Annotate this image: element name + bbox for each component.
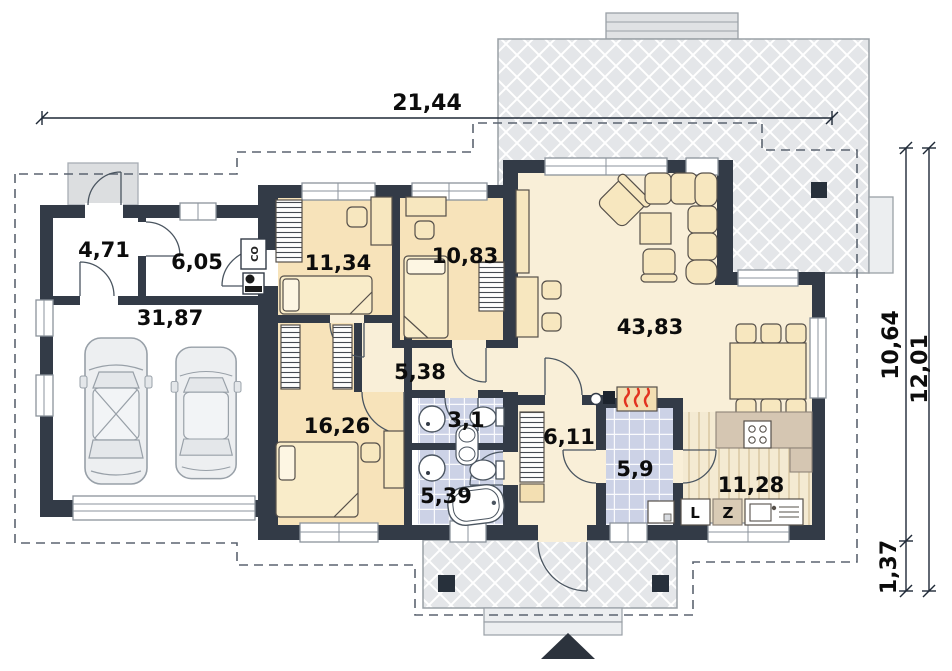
room-label-bathroom-small: 3,1: [447, 408, 484, 432]
dimension-height-inner: 10,64: [879, 310, 904, 380]
toilet: [470, 460, 504, 480]
bed-2: [404, 256, 448, 338]
chair: [542, 281, 561, 299]
desk-chair: [361, 443, 380, 462]
porch-column-right: [652, 575, 669, 592]
floor-plan-page: 21,44 10,64 12,01 1,37 4,71 6,05 31,87 1…: [0, 0, 952, 671]
chair: [542, 313, 561, 331]
hob-icon: [744, 421, 771, 448]
washing-machine: [648, 501, 674, 523]
wardrobe: [281, 325, 300, 389]
entrance-arrow: [541, 633, 595, 659]
room-label-bedroom-3: 16,26: [304, 414, 370, 438]
terrace-step: [869, 197, 893, 273]
dining-chair: [761, 324, 781, 343]
dimension-height-total: 12,01: [908, 334, 933, 404]
wardrobe: [333, 325, 352, 389]
dining-set: [730, 324, 806, 418]
bed-1: [280, 276, 372, 314]
room-label-kitchen: 11,28: [718, 473, 784, 497]
terrace-column: [811, 182, 827, 198]
room-label-hall: 6,11: [543, 425, 595, 449]
sideboard: [516, 190, 529, 273]
dimension-height-porch: 1,37: [877, 540, 902, 594]
room-label-vestibule: 4,71: [78, 238, 130, 262]
room-floor-corridor-upper: [362, 323, 392, 348]
porch-column-left: [438, 575, 455, 592]
fireplace-flue: [591, 394, 602, 405]
washbasin: [419, 406, 445, 432]
desk: [406, 197, 446, 216]
entry-canopy: [68, 163, 138, 205]
porch-step-2: [484, 622, 622, 635]
kitchen-counter-return: [790, 448, 812, 472]
room-label-bedroom-1: 11,34: [305, 251, 371, 275]
wardrobe: [276, 200, 302, 262]
desk-chair: [415, 221, 434, 239]
room-label-garage: 31,87: [137, 306, 203, 330]
room-label-tech: 6,05: [171, 250, 223, 274]
dishwasher-label: Z: [723, 504, 734, 522]
dining-chair: [736, 324, 756, 343]
kitchen-sink: [745, 499, 803, 525]
room-label-bathroom: 5,39: [420, 484, 472, 508]
console-table: [516, 277, 538, 337]
fridge-label: L: [690, 504, 700, 522]
fireplace-box: [603, 391, 615, 404]
washbasin: [419, 455, 445, 481]
room-label-corridor: 5,38: [394, 360, 446, 384]
hall-wardrobe: [520, 412, 544, 482]
desk: [384, 431, 404, 488]
car-2: [171, 347, 241, 478]
coffee-table: [640, 213, 671, 244]
desk: [371, 197, 392, 245]
bed-3: [276, 442, 358, 517]
room-label-bedroom-2: 10,83: [432, 244, 498, 268]
floor-plan-drawing: 21,44 10,64 12,01 1,37 4,71 6,05 31,87 1…: [0, 0, 952, 671]
desk-chair: [347, 207, 367, 227]
wardrobe: [479, 262, 504, 311]
car-1: [80, 338, 152, 484]
hall-cabinet: [520, 484, 544, 502]
chimney: [606, 13, 738, 39]
dining-chair: [786, 324, 806, 343]
dimension-width-total: 21,44: [392, 91, 462, 116]
dining-table: [730, 343, 806, 399]
small-armchair: [641, 249, 677, 282]
boiler-label: CO: [250, 246, 261, 262]
room-label-utility: 5,9: [616, 457, 653, 481]
room-label-living: 43,83: [617, 315, 683, 339]
